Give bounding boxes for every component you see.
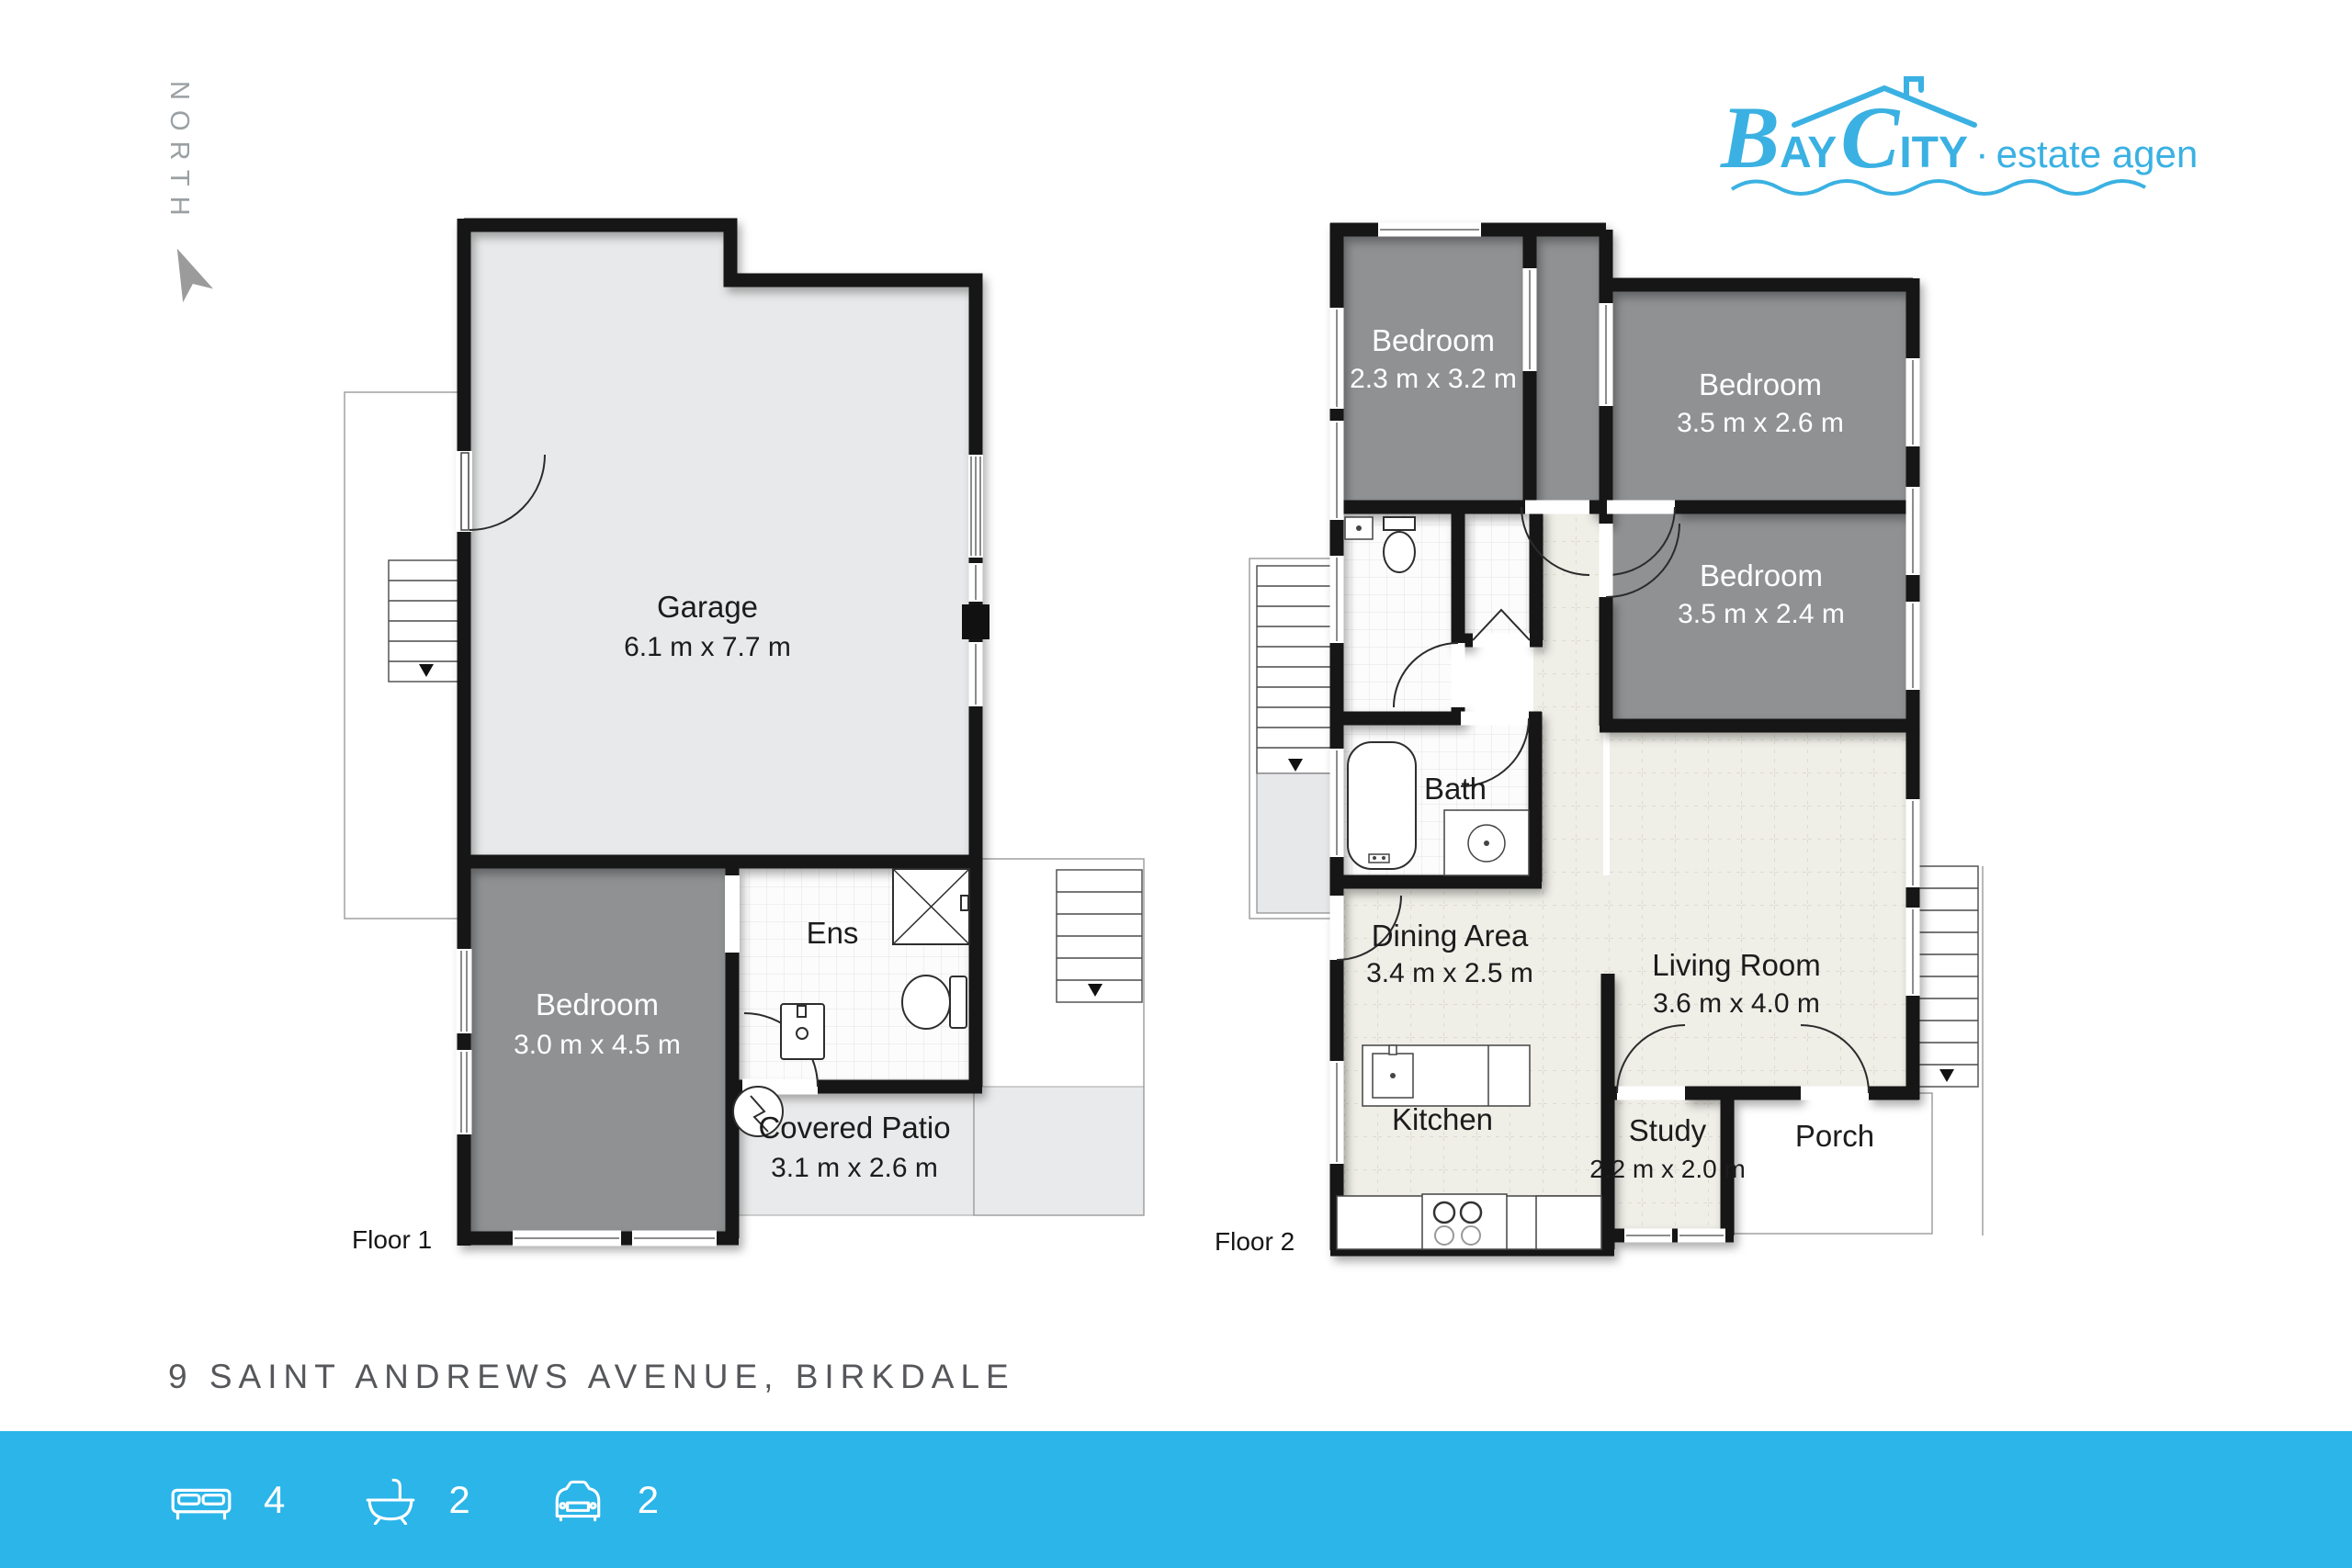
bedroom-small-dims: 2.3 m x 3.2 m bbox=[1350, 364, 1517, 394]
room-hall bbox=[1533, 513, 1603, 885]
bedroom-small-name: Bedroom bbox=[1372, 323, 1495, 357]
floor2-left-stairs bbox=[1257, 566, 1332, 913]
dining-dims: 3.4 m x 2.5 m bbox=[1366, 958, 1533, 988]
study-name: Study bbox=[1629, 1113, 1707, 1147]
toilet-icon bbox=[902, 976, 967, 1029]
floor1-left-stairs bbox=[389, 560, 464, 682]
bedroom-f1-dims: 3.0 m x 4.5 m bbox=[514, 1030, 681, 1060]
kitchen-bench-stove-icon bbox=[1337, 1194, 1601, 1249]
kitchen-name: Kitchen bbox=[1392, 1102, 1493, 1136]
patio-dims: 3.1 m x 2.6 m bbox=[771, 1153, 938, 1183]
sink-icon bbox=[781, 1004, 824, 1059]
logo-wave-icon bbox=[1732, 181, 2145, 194]
porch-name: Porch bbox=[1795, 1119, 1874, 1153]
bedroom-top-name: Bedroom bbox=[1699, 367, 1822, 401]
footer-bar: 4 2 2 bbox=[0, 1431, 2352, 1568]
kitchen-island-icon bbox=[1363, 1045, 1530, 1106]
bath-icon bbox=[364, 1475, 417, 1525]
room-robe bbox=[1536, 236, 1600, 501]
room-living bbox=[1610, 726, 1906, 1093]
logo-wordmark: BAYCITY·estate agents bbox=[1720, 88, 2196, 186]
floor1-right-stairs bbox=[1057, 870, 1142, 1002]
north-label: NORTH bbox=[164, 81, 194, 226]
study-dims: 2.2 m x 2.0 m bbox=[1589, 1155, 1746, 1183]
patio-name: Covered Patio bbox=[758, 1111, 950, 1145]
living-dims: 3.6 m x 4.0 m bbox=[1653, 988, 1820, 1019]
floorplan-page: NORTH BAYCITY·estate agents bbox=[0, 0, 2352, 1568]
floor2-right-stairs bbox=[1916, 866, 1983, 1235]
garage-dims: 6.1 m x 7.7 m bbox=[624, 632, 791, 662]
bathtub-icon bbox=[1348, 742, 1416, 869]
floor2-plan: Bedroom 2.3 m x 3.2 m Bedroom 3.5 m x 2.… bbox=[1213, 211, 2021, 1286]
floor1-label: Floor 1 bbox=[352, 1225, 432, 1255]
bedroom-mid-name: Bedroom bbox=[1700, 558, 1823, 592]
bedroom-top-dims: 3.5 m x 2.6 m bbox=[1677, 408, 1844, 438]
bed-count: 4 bbox=[264, 1478, 285, 1522]
bedroom-f1-name: Bedroom bbox=[536, 987, 659, 1021]
bed-icon bbox=[170, 1476, 232, 1524]
room-porch bbox=[1734, 1093, 1932, 1234]
room-linen bbox=[1464, 513, 1530, 634]
living-name: Living Room bbox=[1652, 948, 1820, 982]
car-count: 2 bbox=[638, 1478, 659, 1522]
bath-count: 2 bbox=[448, 1478, 469, 1522]
floor1-plan: Garage 6.1 m x 7.7 m Bedroom 3.0 m x 4.5… bbox=[331, 207, 1158, 1277]
ens-name: Ens bbox=[807, 916, 859, 950]
bath-name: Bath bbox=[1424, 772, 1487, 806]
vanity-sink-icon bbox=[1444, 810, 1529, 875]
dining-name: Dining Area bbox=[1372, 919, 1529, 953]
car-icon bbox=[549, 1478, 606, 1522]
property-stats: 4 2 2 bbox=[170, 1431, 659, 1568]
baycity-logo: BAYCITY·estate agents bbox=[1677, 72, 2196, 232]
shower-icon bbox=[893, 869, 969, 944]
bedroom-mid-dims: 3.5 m x 2.4 m bbox=[1678, 599, 1845, 629]
garage-name: Garage bbox=[657, 590, 758, 624]
room-garage bbox=[470, 231, 969, 855]
address: 9 SAINT ANDREWS AVENUE, BIRKDALE bbox=[168, 1358, 1015, 1396]
floor2-label: Floor 2 bbox=[1215, 1227, 1295, 1257]
north-arrow-icon bbox=[157, 238, 220, 309]
